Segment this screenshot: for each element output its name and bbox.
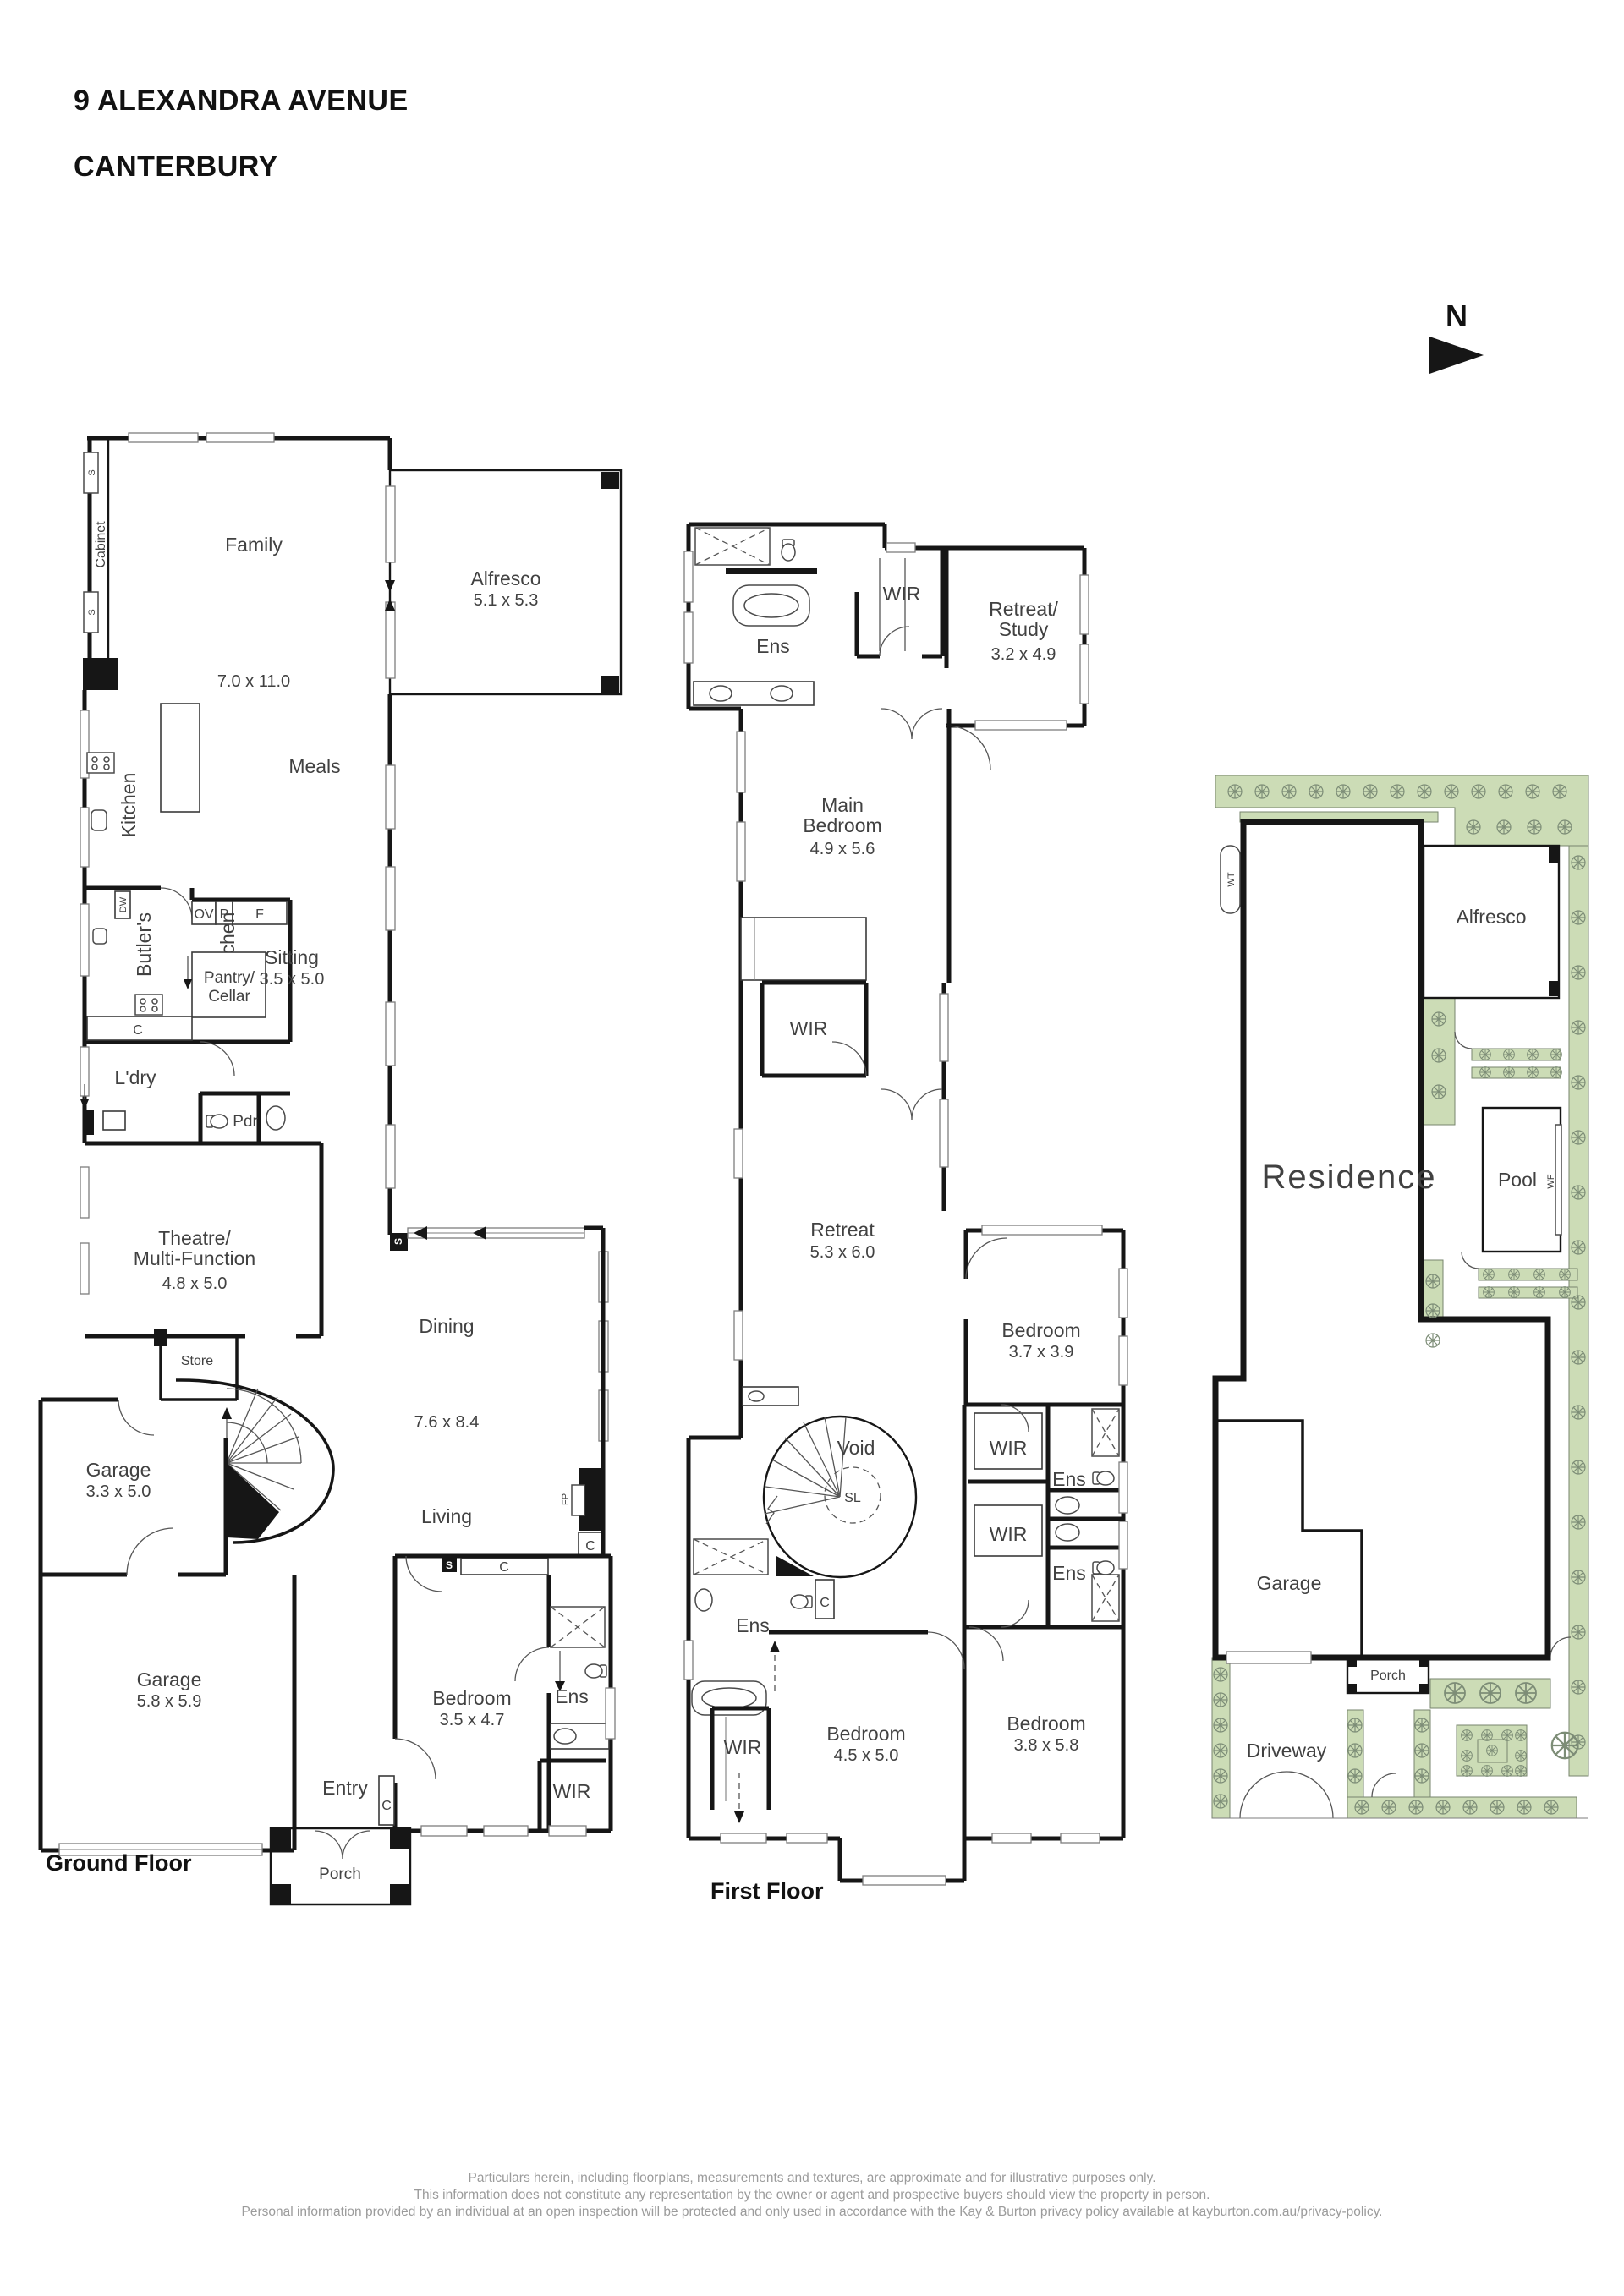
store-label: Store [181, 1354, 213, 1368]
fridge-marker: F [255, 907, 264, 922]
laundry-label: L'dry [114, 1066, 156, 1088]
north-arrow-icon: N [1429, 299, 1484, 374]
dining-label: Dining [419, 1315, 474, 1337]
pantry-label2: Cellar [208, 988, 250, 1006]
shower [551, 1607, 605, 1647]
first-floor-plan: Ens WIR Retreat/ Study 3.2 x 4.9 Main Be… [684, 524, 1127, 1904]
footer-line2: This information does not constitute any… [0, 2187, 1624, 2204]
site-alfresco-label: Alfresco [1456, 906, 1526, 928]
garage1-dim: 3.3 x 5.0 [86, 1482, 151, 1501]
bedroom4-label: Bedroom [1007, 1712, 1085, 1734]
wir-r2-label: WIR [990, 1523, 1028, 1545]
bedroom2-dim: 3.7 x 3.9 [1009, 1343, 1074, 1362]
sink-icon [93, 929, 107, 944]
basin-icon [710, 686, 732, 701]
main-bedroom-label2: Bedroom [803, 814, 881, 836]
family-dim: 7.0 x 11.0 [217, 672, 290, 691]
main-bedroom-dim: 4.9 x 5.6 [810, 840, 875, 858]
water-feature-marker: WF [1546, 1174, 1556, 1188]
powder-label: Pdr [233, 1113, 258, 1131]
basin-icon [1056, 1497, 1079, 1514]
pool-label: Pool [1498, 1169, 1537, 1191]
wir-mid-label: WIR [790, 1017, 828, 1039]
butlers-kitchen-label1: Butler's [133, 912, 155, 977]
basin-icon [771, 686, 793, 701]
toilet-icon [1093, 1561, 1114, 1575]
retreat-study-dim: 3.2 x 4.9 [991, 645, 1056, 664]
basin-icon [695, 1589, 712, 1611]
driveway-label: Driveway [1247, 1740, 1327, 1762]
skylight-marker: SL [844, 1491, 861, 1505]
wir-left-label: WIR [724, 1736, 762, 1758]
cupboard-marker: C [585, 1539, 595, 1553]
bedroom2-label: Bedroom [1001, 1319, 1080, 1341]
ens-left-label: Ens [736, 1614, 770, 1636]
toilet-icon [782, 540, 795, 561]
sitting-label: Sitting [265, 946, 319, 968]
oven-marker: OV [194, 907, 213, 922]
north-arrow-triangle [1429, 337, 1484, 374]
ensuite-main-label: Ens [756, 635, 790, 657]
void-stair: Void SL [764, 1417, 916, 1577]
alfresco-dim: 5.1 x 5.3 [474, 591, 539, 610]
sliding-door-marker: S [446, 1559, 453, 1571]
site-garage-label: Garage [1257, 1572, 1322, 1594]
retreat-study-label2: Study [999, 618, 1049, 640]
toilet-icon [791, 1595, 812, 1608]
island-bench [161, 704, 200, 812]
footer-line1: Particulars herein, including floorplans… [0, 2170, 1624, 2187]
north-label: N [1446, 299, 1468, 333]
shower [1092, 1575, 1119, 1621]
living-label: Living [421, 1505, 472, 1527]
water-feature [1555, 1125, 1561, 1235]
porch-label: Porch [319, 1866, 361, 1883]
cooktop-icon [87, 753, 114, 773]
garage2-dim: 5.8 x 5.9 [137, 1692, 202, 1711]
bedroom-dim: 3.5 x 4.7 [440, 1711, 505, 1729]
wir-r1-label: WIR [990, 1437, 1028, 1459]
alfresco-label: Alfresco [470, 567, 540, 589]
retreat-dim: 5.3 x 6.0 [810, 1243, 875, 1262]
ensuite-label: Ens [555, 1685, 589, 1707]
disclaimer-footer: Particulars herein, including floorplans… [0, 2170, 1624, 2221]
theatre-label2: Multi-Function [134, 1247, 255, 1269]
theatre-label1: Theatre/ [158, 1227, 231, 1249]
basin-icon [1056, 1524, 1079, 1541]
shower [695, 528, 770, 565]
first-floor-caption: First Floor [710, 1878, 824, 1904]
floorplan-page: 9 ALEXANDRA AVENUE CANTERBURY N S S Cabi… [0, 0, 1624, 2296]
toilet-icon [585, 1664, 606, 1678]
bedroom-label: Bedroom [432, 1687, 511, 1709]
bedroom3-label: Bedroom [826, 1723, 905, 1745]
ens-r2-label: Ens [1052, 1562, 1086, 1584]
shower [1092, 1409, 1119, 1456]
entry-label: Entry [322, 1777, 368, 1799]
wir-label: WIR [553, 1780, 591, 1802]
cupboard-marker: C [381, 1799, 392, 1813]
storage-marker: S [87, 469, 97, 475]
void-label: Void [837, 1437, 875, 1459]
tree-icon [1552, 1733, 1577, 1758]
retreat-study-label1: Retreat/ [989, 598, 1058, 620]
floorplan-canvas: N S S Cabinet Kitchen Family 7.0 x 11.0 … [0, 0, 1624, 2296]
site-porch-label: Porch [1370, 1669, 1406, 1683]
sink-icon [91, 810, 107, 830]
garage1-label: Garage [86, 1459, 151, 1481]
cupboard-marker: C [820, 1596, 830, 1610]
bedroom4-dim: 3.8 x 5.8 [1014, 1736, 1079, 1755]
robe-marker: C [499, 1560, 509, 1575]
dining-dim: 7.6 x 8.4 [414, 1413, 480, 1432]
residence-label: Residence [1261, 1159, 1436, 1196]
theatre-dim: 4.8 x 5.0 [162, 1274, 228, 1293]
ground-floor-plan: S S Cabinet Kitchen Family 7.0 x 11.0 Me… [41, 433, 621, 1904]
sitting-dim: 3.5 x 5.0 [260, 970, 325, 989]
washer-icon [103, 1111, 125, 1130]
toilet-icon [1093, 1471, 1114, 1485]
shower [694, 1539, 768, 1575]
toilet-icon [206, 1115, 228, 1128]
wir-top-label: WIR [883, 583, 921, 605]
garage-door [1226, 1652, 1311, 1663]
sliding-door-marker: S [392, 1238, 404, 1245]
bedroom3-dim: 4.5 x 5.0 [834, 1746, 899, 1765]
family-label: Family [225, 534, 283, 556]
main-bedroom-label1: Main [821, 794, 864, 816]
meals-label: Meals [288, 755, 340, 777]
fireplace-marker: FP [561, 1493, 571, 1505]
dishwasher-marker: DW [118, 896, 129, 912]
residence-outline [1215, 822, 1548, 1658]
footer-line3: Personal information provided by an indi… [0, 2204, 1624, 2221]
cupboard-marker: C [133, 1023, 143, 1038]
ground-floor-caption: Ground Floor [46, 1850, 192, 1876]
spiral-staircase [176, 1380, 333, 1543]
cabinet-label: Cabinet [94, 521, 108, 568]
cooktop-icon [135, 995, 162, 1015]
door-arrow-icon [385, 580, 395, 592]
kitchen-label: Kitchen [118, 773, 140, 838]
site-plan: Residence Garage Alfresco Pool WF WT Por… [1212, 775, 1588, 1818]
pantry-label1: Pantry/ [204, 969, 255, 987]
ens-r1-label: Ens [1052, 1468, 1086, 1490]
garage2-label: Garage [137, 1669, 202, 1690]
retreat-label: Retreat [810, 1219, 875, 1241]
storage-marker: S [87, 609, 97, 615]
water-tank-marker: WT [1226, 872, 1237, 886]
bed [741, 918, 866, 980]
basin-icon [266, 1106, 285, 1130]
basin-icon [554, 1729, 576, 1744]
